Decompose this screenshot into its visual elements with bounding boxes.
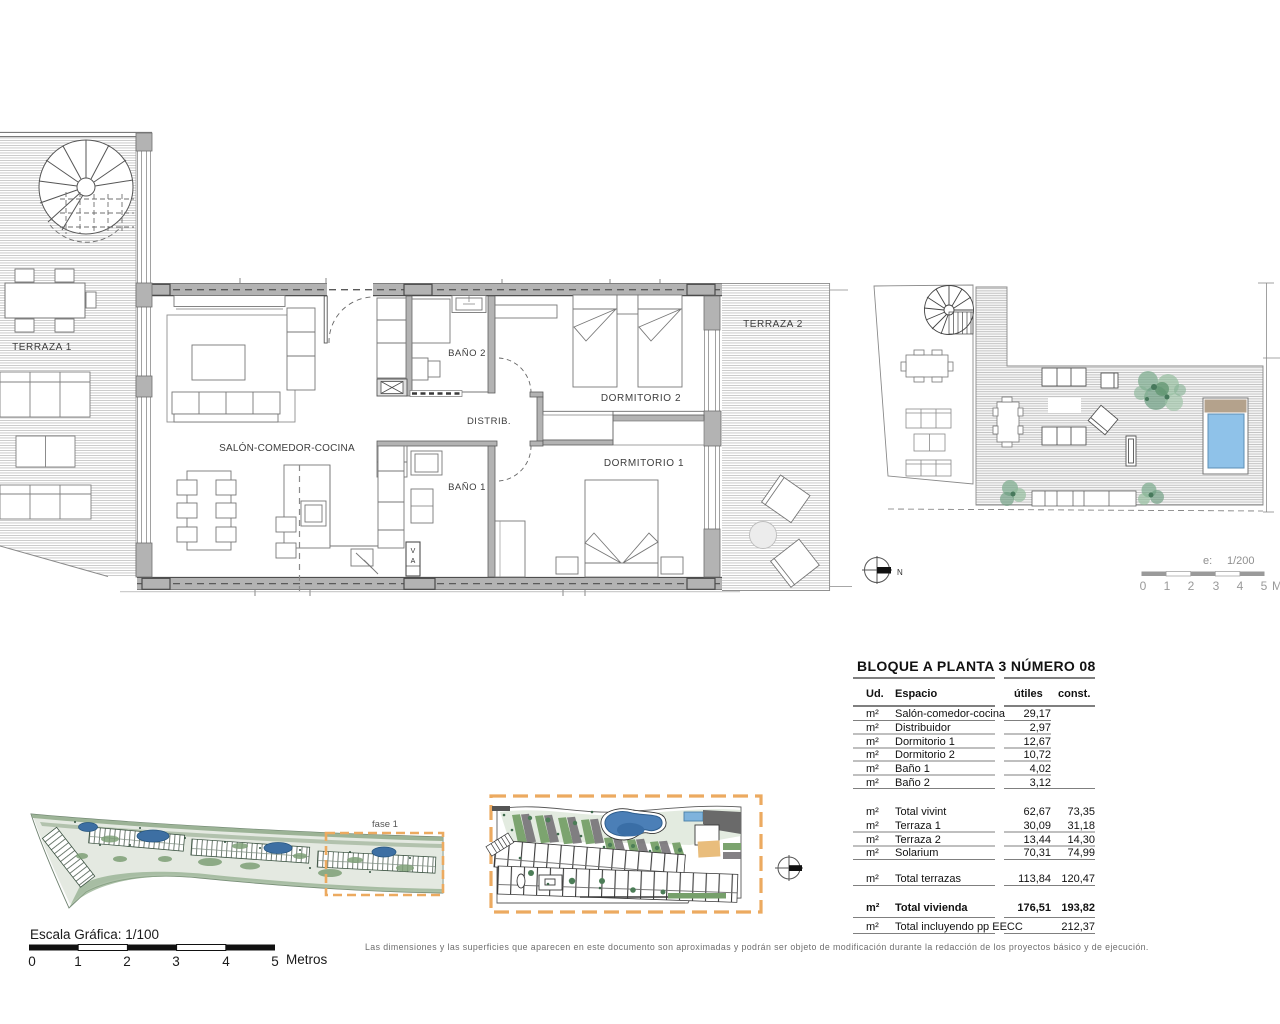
svg-text:70,31: 70,31 <box>1023 847 1051 859</box>
svg-text:BLOQUE A PLANTA 3 NÚMERO 08: BLOQUE A PLANTA 3 NÚMERO 08 <box>857 657 1096 674</box>
svg-text:1: 1 <box>74 954 82 969</box>
svg-text:m²: m² <box>866 873 879 885</box>
svg-text:3: 3 <box>1213 579 1220 593</box>
svg-text:Espacio: Espacio <box>895 688 937 700</box>
svg-text:A: A <box>411 558 416 565</box>
svg-text:fase 1: fase 1 <box>372 819 398 830</box>
svg-text:1/200: 1/200 <box>1227 555 1255 567</box>
svg-text:m²: m² <box>866 820 879 832</box>
svg-text:Total incluyendo pp EECC: Total incluyendo pp EECC <box>895 921 1023 933</box>
svg-text:TERRAZA 1: TERRAZA 1 <box>12 342 72 353</box>
svg-text:Distribuidor: Distribuidor <box>895 722 951 734</box>
svg-text:DORMITORIO 2: DORMITORIO 2 <box>601 393 681 404</box>
svg-text:m²: m² <box>866 777 879 789</box>
svg-text:m²: m² <box>866 749 879 761</box>
svg-text:212,37: 212,37 <box>1061 921 1095 933</box>
svg-text:const.: const. <box>1058 688 1090 700</box>
svg-text:14,30: 14,30 <box>1067 834 1095 846</box>
svg-text:m²: m² <box>866 806 879 818</box>
svg-text:Terraza 2: Terraza 2 <box>895 834 941 846</box>
svg-text:BAÑO 2: BAÑO 2 <box>448 348 486 359</box>
svg-text:útiles: útiles <box>1014 688 1043 700</box>
svg-text:m²: m² <box>866 902 880 914</box>
svg-text:4: 4 <box>1237 579 1244 593</box>
svg-text:4: 4 <box>222 954 230 969</box>
svg-text:Total vivienda: Total vivienda <box>895 902 968 914</box>
svg-text:113,84: 113,84 <box>1018 873 1051 885</box>
svg-text:m²: m² <box>866 763 879 775</box>
svg-text:m²: m² <box>866 722 879 734</box>
svg-text:Dormitorio 1: Dormitorio 1 <box>895 736 955 748</box>
svg-text:Solarium: Solarium <box>895 847 938 859</box>
svg-text:Dormitorio 2: Dormitorio 2 <box>895 749 955 761</box>
svg-text:Baño 1: Baño 1 <box>895 763 930 775</box>
svg-text:2: 2 <box>1188 579 1195 593</box>
svg-text:1: 1 <box>1164 579 1171 593</box>
svg-text:m²: m² <box>866 834 879 846</box>
svg-text:62,67: 62,67 <box>1023 806 1051 818</box>
svg-text:5: 5 <box>1261 579 1268 593</box>
svg-text:Total terrazas: Total terrazas <box>895 873 962 885</box>
svg-text:Las dimensiones y las superfic: Las dimensiones y las superficies que ap… <box>365 942 1149 952</box>
svg-text:M: M <box>1272 579 1280 593</box>
svg-text:Ud.: Ud. <box>866 688 884 700</box>
svg-text:30,09: 30,09 <box>1023 820 1051 832</box>
svg-text:29,17: 29,17 <box>1023 708 1051 720</box>
svg-text:193,82: 193,82 <box>1061 902 1095 914</box>
svg-text:TERRAZA 2: TERRAZA 2 <box>743 319 803 330</box>
svg-text:e:: e: <box>1203 555 1212 567</box>
svg-text:V: V <box>411 548 416 555</box>
svg-text:0: 0 <box>1140 579 1147 593</box>
svg-text:10,72: 10,72 <box>1023 749 1051 761</box>
svg-text:2: 2 <box>123 954 131 969</box>
svg-text:31,18: 31,18 <box>1067 820 1095 832</box>
svg-text:5: 5 <box>271 954 279 969</box>
svg-text:Salón-comedor-cocina: Salón-comedor-cocina <box>895 708 1006 720</box>
svg-text:0: 0 <box>28 954 36 969</box>
svg-text:BAÑO 1: BAÑO 1 <box>448 482 486 493</box>
svg-text:120,47: 120,47 <box>1061 873 1095 885</box>
svg-text:m²: m² <box>866 736 879 748</box>
svg-text:176,51: 176,51 <box>1017 902 1051 914</box>
svg-text:m²: m² <box>866 847 879 859</box>
svg-text:Escala Gráfica: 1/100: Escala Gráfica: 1/100 <box>30 927 159 942</box>
svg-text:4,02: 4,02 <box>1030 763 1051 775</box>
svg-text:74,99: 74,99 <box>1067 847 1095 859</box>
svg-text:Total vivint: Total vivint <box>895 806 946 818</box>
svg-text:3: 3 <box>172 954 180 969</box>
svg-text:12,67: 12,67 <box>1023 736 1051 748</box>
svg-text:Terraza 1: Terraza 1 <box>895 820 941 832</box>
svg-text:DISTRIB.: DISTRIB. <box>467 416 511 427</box>
svg-text:m²: m² <box>866 708 879 720</box>
svg-text:Metros: Metros <box>286 952 328 967</box>
svg-text:m²: m² <box>866 921 879 933</box>
svg-text:13,44: 13,44 <box>1023 834 1051 846</box>
svg-text:3,12: 3,12 <box>1030 777 1051 789</box>
svg-text:73,35: 73,35 <box>1067 806 1095 818</box>
svg-text:SALÓN-COMEDOR-COCINA: SALÓN-COMEDOR-COCINA <box>219 441 355 454</box>
svg-text:2,97: 2,97 <box>1030 722 1051 734</box>
svg-text:N: N <box>897 568 903 577</box>
svg-text:DORMITORIO 1: DORMITORIO 1 <box>604 458 684 469</box>
svg-text:Baño 2: Baño 2 <box>895 777 930 789</box>
